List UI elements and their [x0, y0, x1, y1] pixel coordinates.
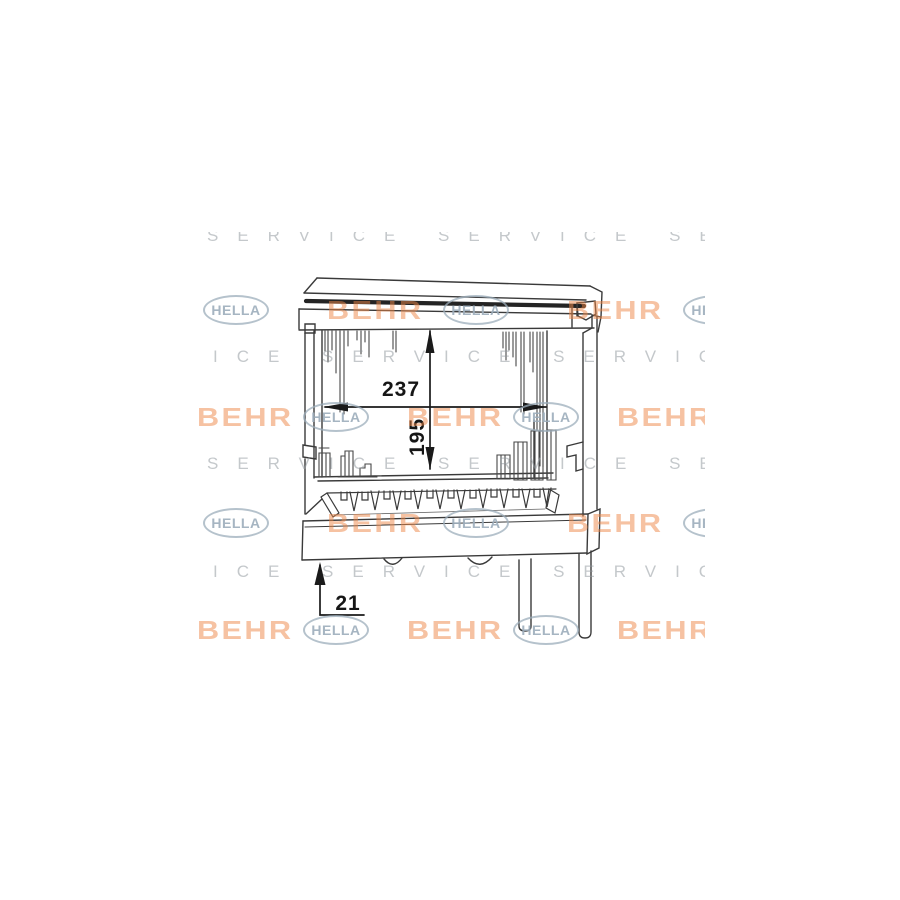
serrated-gasket	[321, 488, 559, 517]
top-tank	[299, 278, 602, 332]
core-frame	[303, 317, 597, 516]
bottom-tank	[302, 509, 600, 564]
dimension-width-label: 237	[382, 378, 420, 401]
product-image: 237 195 21 SERVICE SERVICE SERVICE HELLA…	[0, 0, 900, 900]
dimension-depth-label: 21	[335, 592, 360, 615]
outlet-pipes	[519, 551, 591, 638]
bottom-combs	[319, 430, 556, 480]
heater-core-drawing: 237 195 21	[0, 0, 900, 900]
dimension-height-label: 195	[406, 418, 429, 456]
